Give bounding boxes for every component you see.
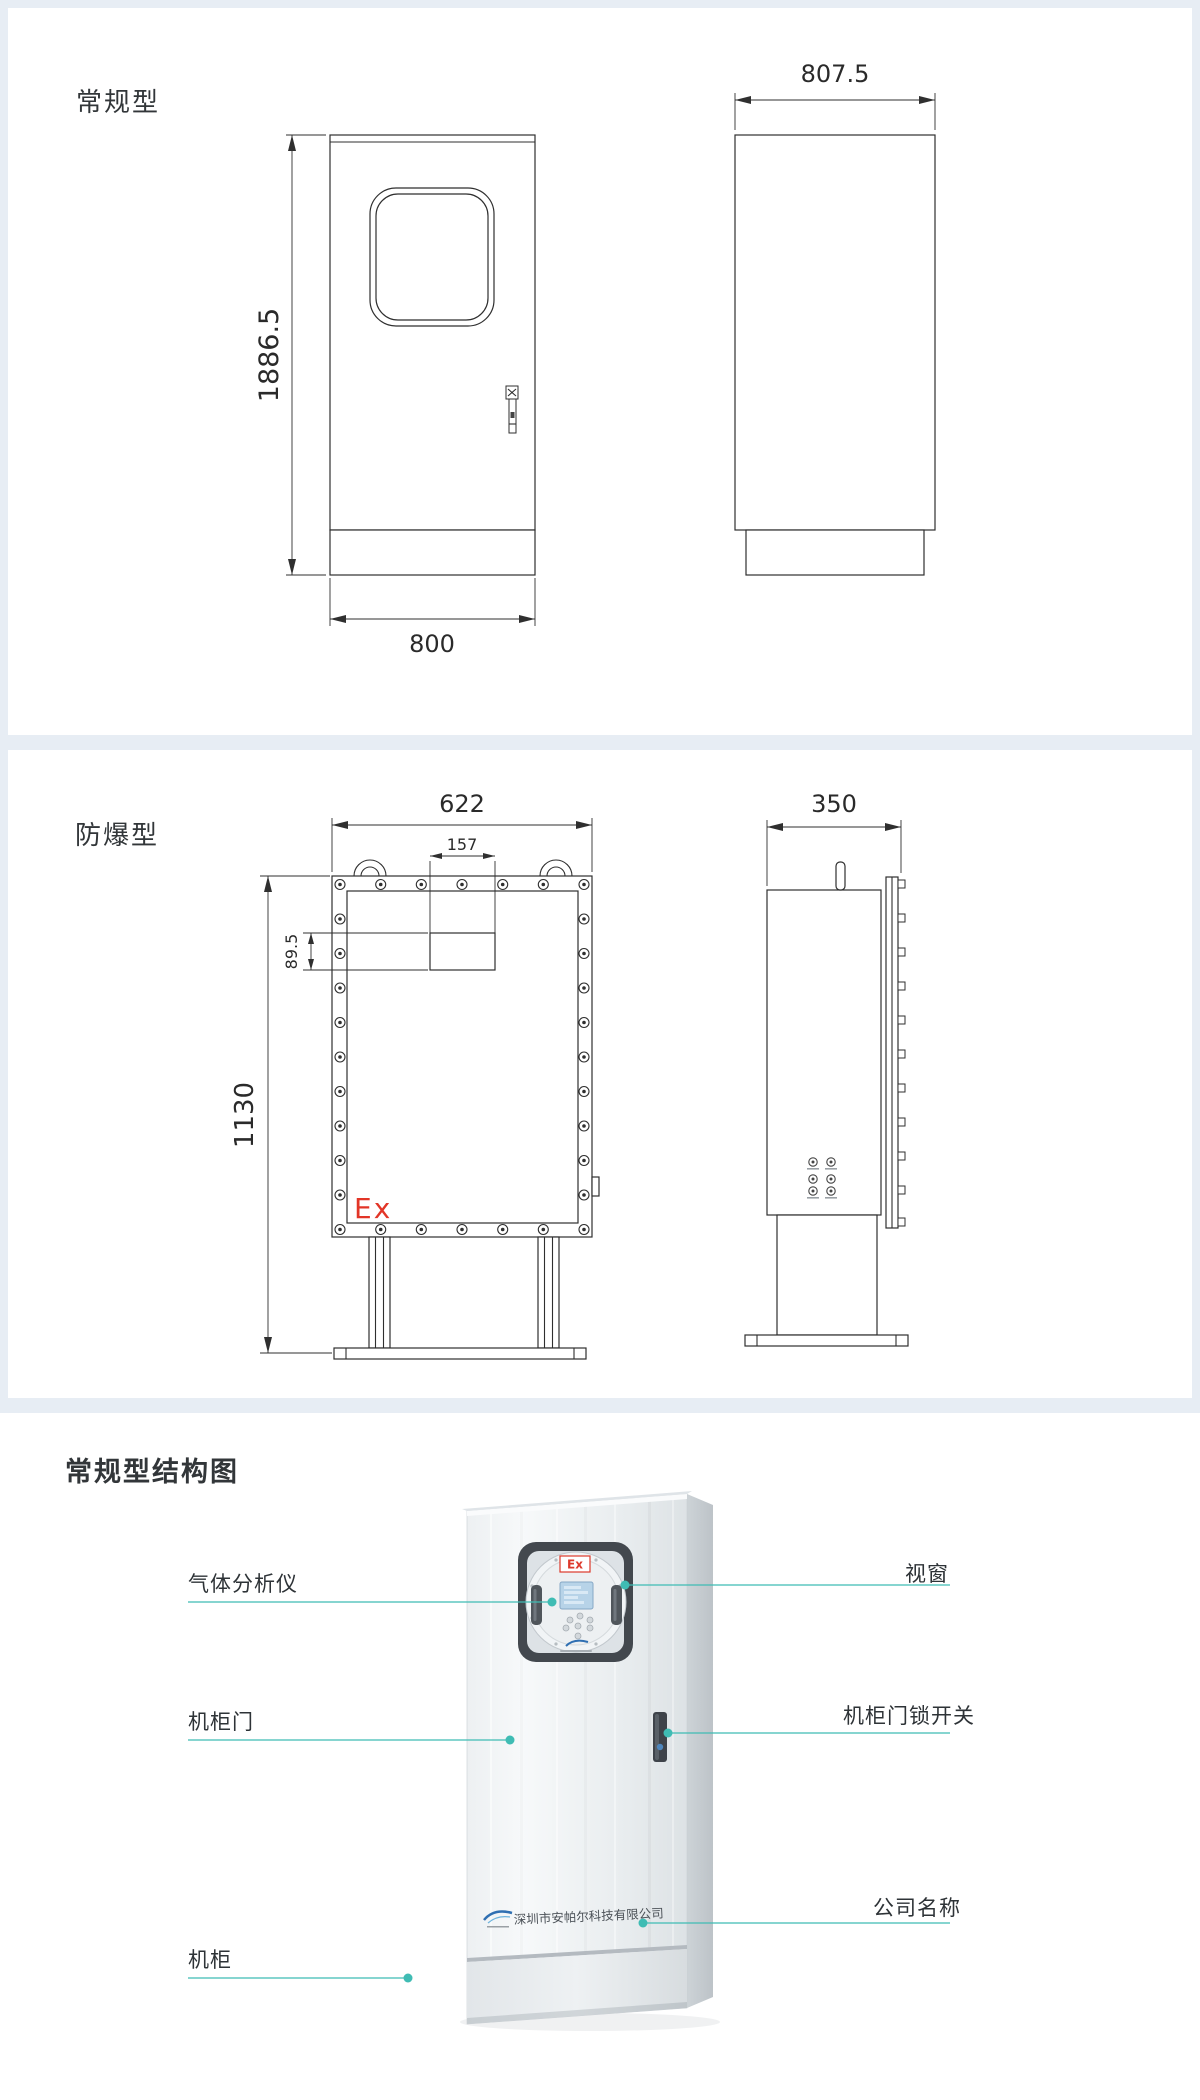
technical-drawing-layer: 1886.5 800 807.5 xyxy=(0,0,1200,2100)
analyzer-ex-badge: Ex xyxy=(567,1558,583,1572)
section-title-regular: 常规型 xyxy=(76,82,160,119)
regular-side-dimensions: 807.5 xyxy=(735,60,935,130)
ex-mark-drawing: Ex xyxy=(354,1192,392,1225)
bolt-head xyxy=(898,1186,905,1194)
bolt-head xyxy=(898,1218,905,1226)
bolt-head xyxy=(898,880,905,888)
regular-side-view xyxy=(735,135,935,575)
callout-cabinet: 机柜 xyxy=(188,1944,232,1974)
dim-explosion-height: 1130 xyxy=(230,1082,260,1148)
explosion-side-view xyxy=(745,862,908,1346)
dim-regular-width: 800 xyxy=(409,630,455,658)
callout-door-lock-switch: 机柜门锁开关 xyxy=(843,1700,975,1730)
flange-bolt-heads xyxy=(898,880,905,1226)
bolt-head xyxy=(898,1118,905,1126)
dim-explosion-depth: 350 xyxy=(811,790,857,818)
regular-front-view xyxy=(330,135,535,575)
dim-regular-depth: 807.5 xyxy=(801,60,870,88)
cabinet-rendering: Ex xyxy=(460,1490,720,2031)
bolt-head xyxy=(898,1084,905,1092)
dim-cutout-width: 157 xyxy=(447,835,478,854)
dim-regular-height: 1886.5 xyxy=(254,308,285,402)
callout-cabinet-door: 机柜门 xyxy=(188,1706,254,1736)
cabinet-side-face xyxy=(687,1494,713,2008)
bolt-head xyxy=(898,982,905,990)
explosion-front-view: Ex xyxy=(332,860,599,1359)
bolt-head xyxy=(898,948,905,956)
dim-cutout-height: 89.5 xyxy=(282,934,301,970)
callout-viewing-window: 视窗 xyxy=(905,1558,949,1588)
bolt-head xyxy=(898,1152,905,1160)
bolt-head xyxy=(898,1016,905,1024)
dim-explosion-width: 622 xyxy=(439,790,485,818)
explosion-side-dimensions: 350 xyxy=(767,790,901,886)
door-lock-switch xyxy=(653,1712,667,1762)
bolt-head xyxy=(898,914,905,922)
page: 1886.5 800 807.5 xyxy=(0,0,1200,2100)
bolt-head xyxy=(898,1050,905,1058)
callout-company-name: 公司名称 xyxy=(873,1892,961,1922)
callout-gas-analyzer: 气体分析仪 xyxy=(188,1568,298,1598)
section-title-structure: 常规型结构图 xyxy=(65,1450,239,1489)
section-title-explosion: 防爆型 xyxy=(75,815,159,852)
